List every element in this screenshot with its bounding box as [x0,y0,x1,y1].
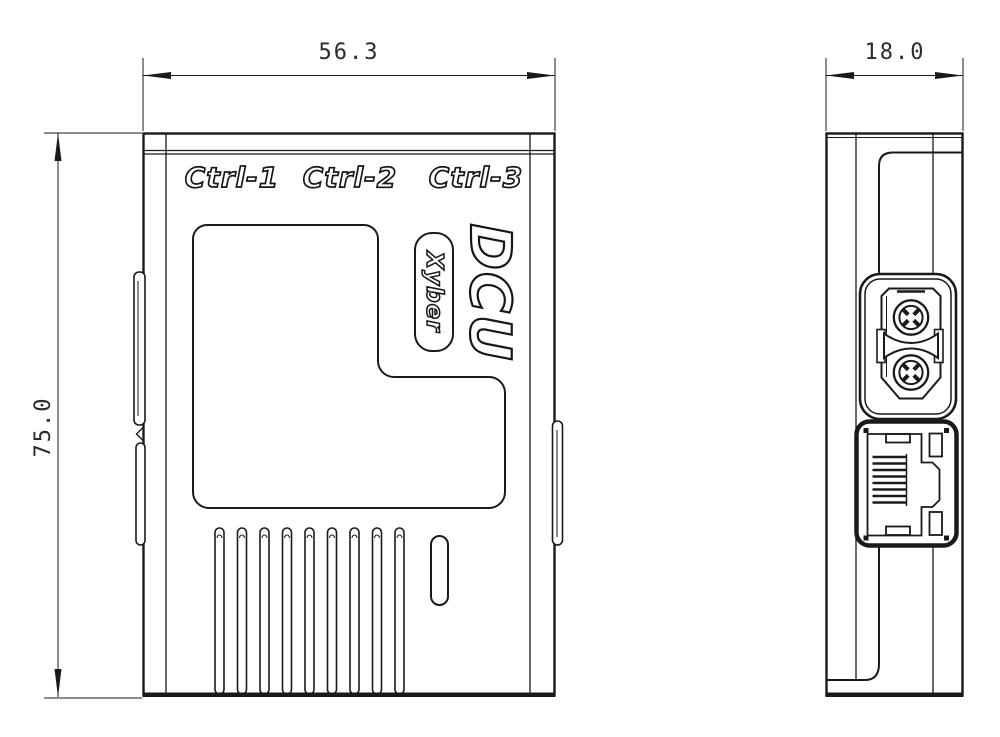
front-height-dim-label: 75.0 [31,387,57,467]
side-view [826,134,963,698]
side-depth-dim-label: 18.0 [850,40,940,65]
brand-badge: Xyber [414,232,454,352]
drawing-canvas: 56.3 75.0 18.0 Ctrl-1 Ctrl-2 Ctrl-3 DCU … [0,0,1000,737]
front-height-dimension [44,133,142,698]
side-depth-dimension [826,58,963,131]
port-label-ctrl-3: Ctrl-3 [416,161,536,195]
port-label-ctrl-1: Ctrl-1 [172,161,292,195]
front-width-dim-label: 56.3 [304,40,394,65]
model-label: DCU [457,213,521,373]
front-width-dimension [143,58,555,131]
brand-label: Xyber [416,234,452,350]
right-rail-tab [553,421,563,545]
port-label-ctrl-2: Ctrl-2 [290,161,410,195]
side-bottom-edge [826,693,963,698]
left-rail-tabs [134,272,145,545]
vent-slots [215,528,404,694]
xt30-power-connector-icon [860,274,956,419]
rj45-ethernet-port-icon [857,422,957,546]
front-bottom-edge [143,693,555,698]
